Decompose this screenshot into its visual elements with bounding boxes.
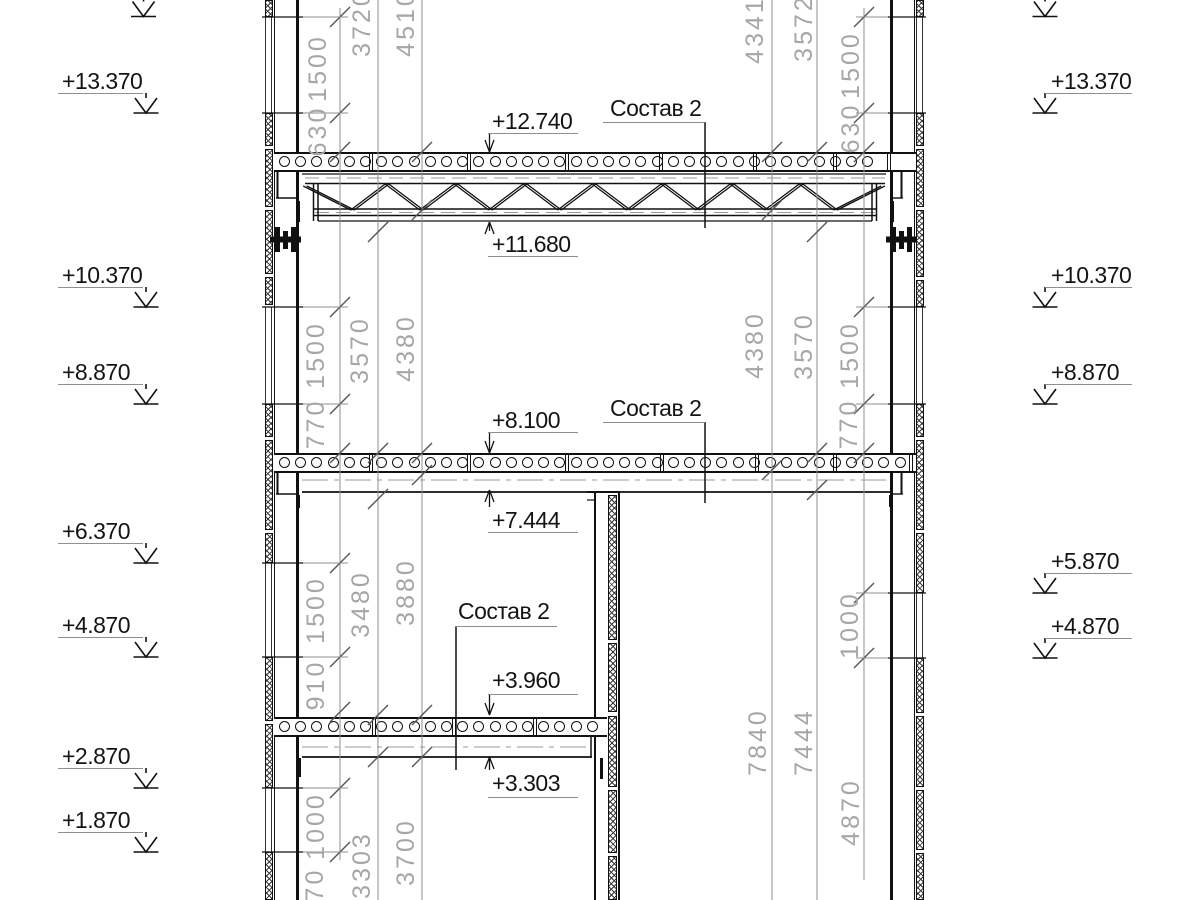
elevation-leader-left: [58, 384, 143, 385]
elevation-mark-left-6: +1.870: [62, 809, 130, 832]
elevation-mark-left-1: +10.370: [62, 264, 142, 287]
dimension-text-left-14: 3303: [349, 820, 375, 900]
level-callout-4: +3.960: [492, 669, 560, 692]
dimension-text-left-3: 4510: [393, 0, 419, 68]
level-callout-leader: [488, 694, 578, 695]
composition-leader: [603, 422, 705, 423]
elevation-leader-left: [58, 287, 143, 288]
dimension-text-left-11: 3880: [393, 547, 419, 637]
elevation-leader-right: [1045, 638, 1132, 639]
dimension-text-left-9: 910: [303, 640, 329, 730]
elevation-leader-right: [1045, 287, 1132, 288]
elevation-mark-right-4: +4.870: [1051, 615, 1119, 638]
dimension-text-left-15: 3700: [393, 807, 419, 897]
composition-leader: [603, 122, 705, 123]
level-callout-5: +3.303: [492, 772, 560, 795]
dimension-text-right-5: 770: [836, 379, 862, 469]
elevation-leader-left: [58, 93, 143, 94]
dimension-text-left-5: 770: [303, 379, 329, 469]
elevation-leader-left: [58, 637, 143, 638]
elevation-mark-left-5: +2.870: [62, 745, 130, 768]
elevation-mark-left-2: +8.870: [62, 361, 130, 384]
dimension-text-right-9: 4870: [838, 767, 864, 857]
level-callout-leader: [488, 797, 578, 798]
dimension-text-left-13: 970: [302, 848, 328, 900]
elevation-mark-right-2: +8.870: [1051, 361, 1119, 384]
elevation-leader-left: [58, 543, 143, 544]
level-callout-leader: [488, 532, 578, 533]
dimension-text-left-6: 3570: [347, 305, 373, 395]
level-callout-leader: [488, 133, 578, 134]
elevation-mark-left-4: +4.870: [62, 614, 130, 637]
level-callout-leader: [488, 256, 578, 257]
level-callout-1: +11.680: [492, 233, 571, 256]
composition-label-0: Состав 2: [610, 97, 701, 120]
dimension-text-left-7: 4380: [393, 303, 419, 393]
dimension-text-right-2: 3572: [791, 0, 817, 73]
composition-leader: [455, 626, 557, 627]
elevation-mark-right-1: +10.370: [1051, 264, 1131, 287]
composition-label-2: Состав 2: [458, 600, 549, 623]
dimension-text-left-1: 630: [305, 86, 331, 176]
elevation-leader-right: [1045, 573, 1132, 574]
dimension-text-right-1: 630: [838, 83, 864, 173]
elevation-mark-left-3: +6.370: [62, 520, 130, 543]
elevation-leader-right: [1045, 384, 1132, 385]
dimension-text-right-10: 7444: [791, 697, 817, 787]
level-callout-2: +8.100: [492, 409, 560, 432]
dimension-text-right-8: 1000: [837, 580, 863, 670]
elevation-leader-right: [1045, 93, 1132, 94]
level-callout-0: +12.740: [492, 110, 572, 133]
annotation-layer: +13.370+10.370+8.870+6.370+4.870+2.870+1…: [0, 0, 1200, 900]
composition-label-1: Состав 2: [610, 397, 701, 420]
level-callout-3: +7.444: [492, 509, 560, 532]
dimension-text-left-2: 3720: [349, 0, 375, 68]
elevation-mark-right-3: +5.870: [1051, 550, 1119, 573]
dimension-text-right-6: 3570: [791, 301, 817, 391]
elevation-leader-left: [58, 768, 143, 769]
elevation-leader-left: [58, 832, 143, 833]
dimension-text-left-10: 3480: [348, 559, 374, 649]
dimension-text-right-11: 7840: [745, 697, 771, 787]
elevation-mark-left-0: +13.370: [62, 70, 142, 93]
dimension-text-right-7: 4380: [742, 300, 768, 390]
dimension-text-right-3: 4341: [742, 0, 768, 75]
building-section-drawing: +13.370+10.370+8.870+6.370+4.870+2.870+1…: [0, 0, 1200, 900]
elevation-mark-right-0: +13.370: [1051, 70, 1131, 93]
level-callout-leader: [488, 432, 578, 433]
